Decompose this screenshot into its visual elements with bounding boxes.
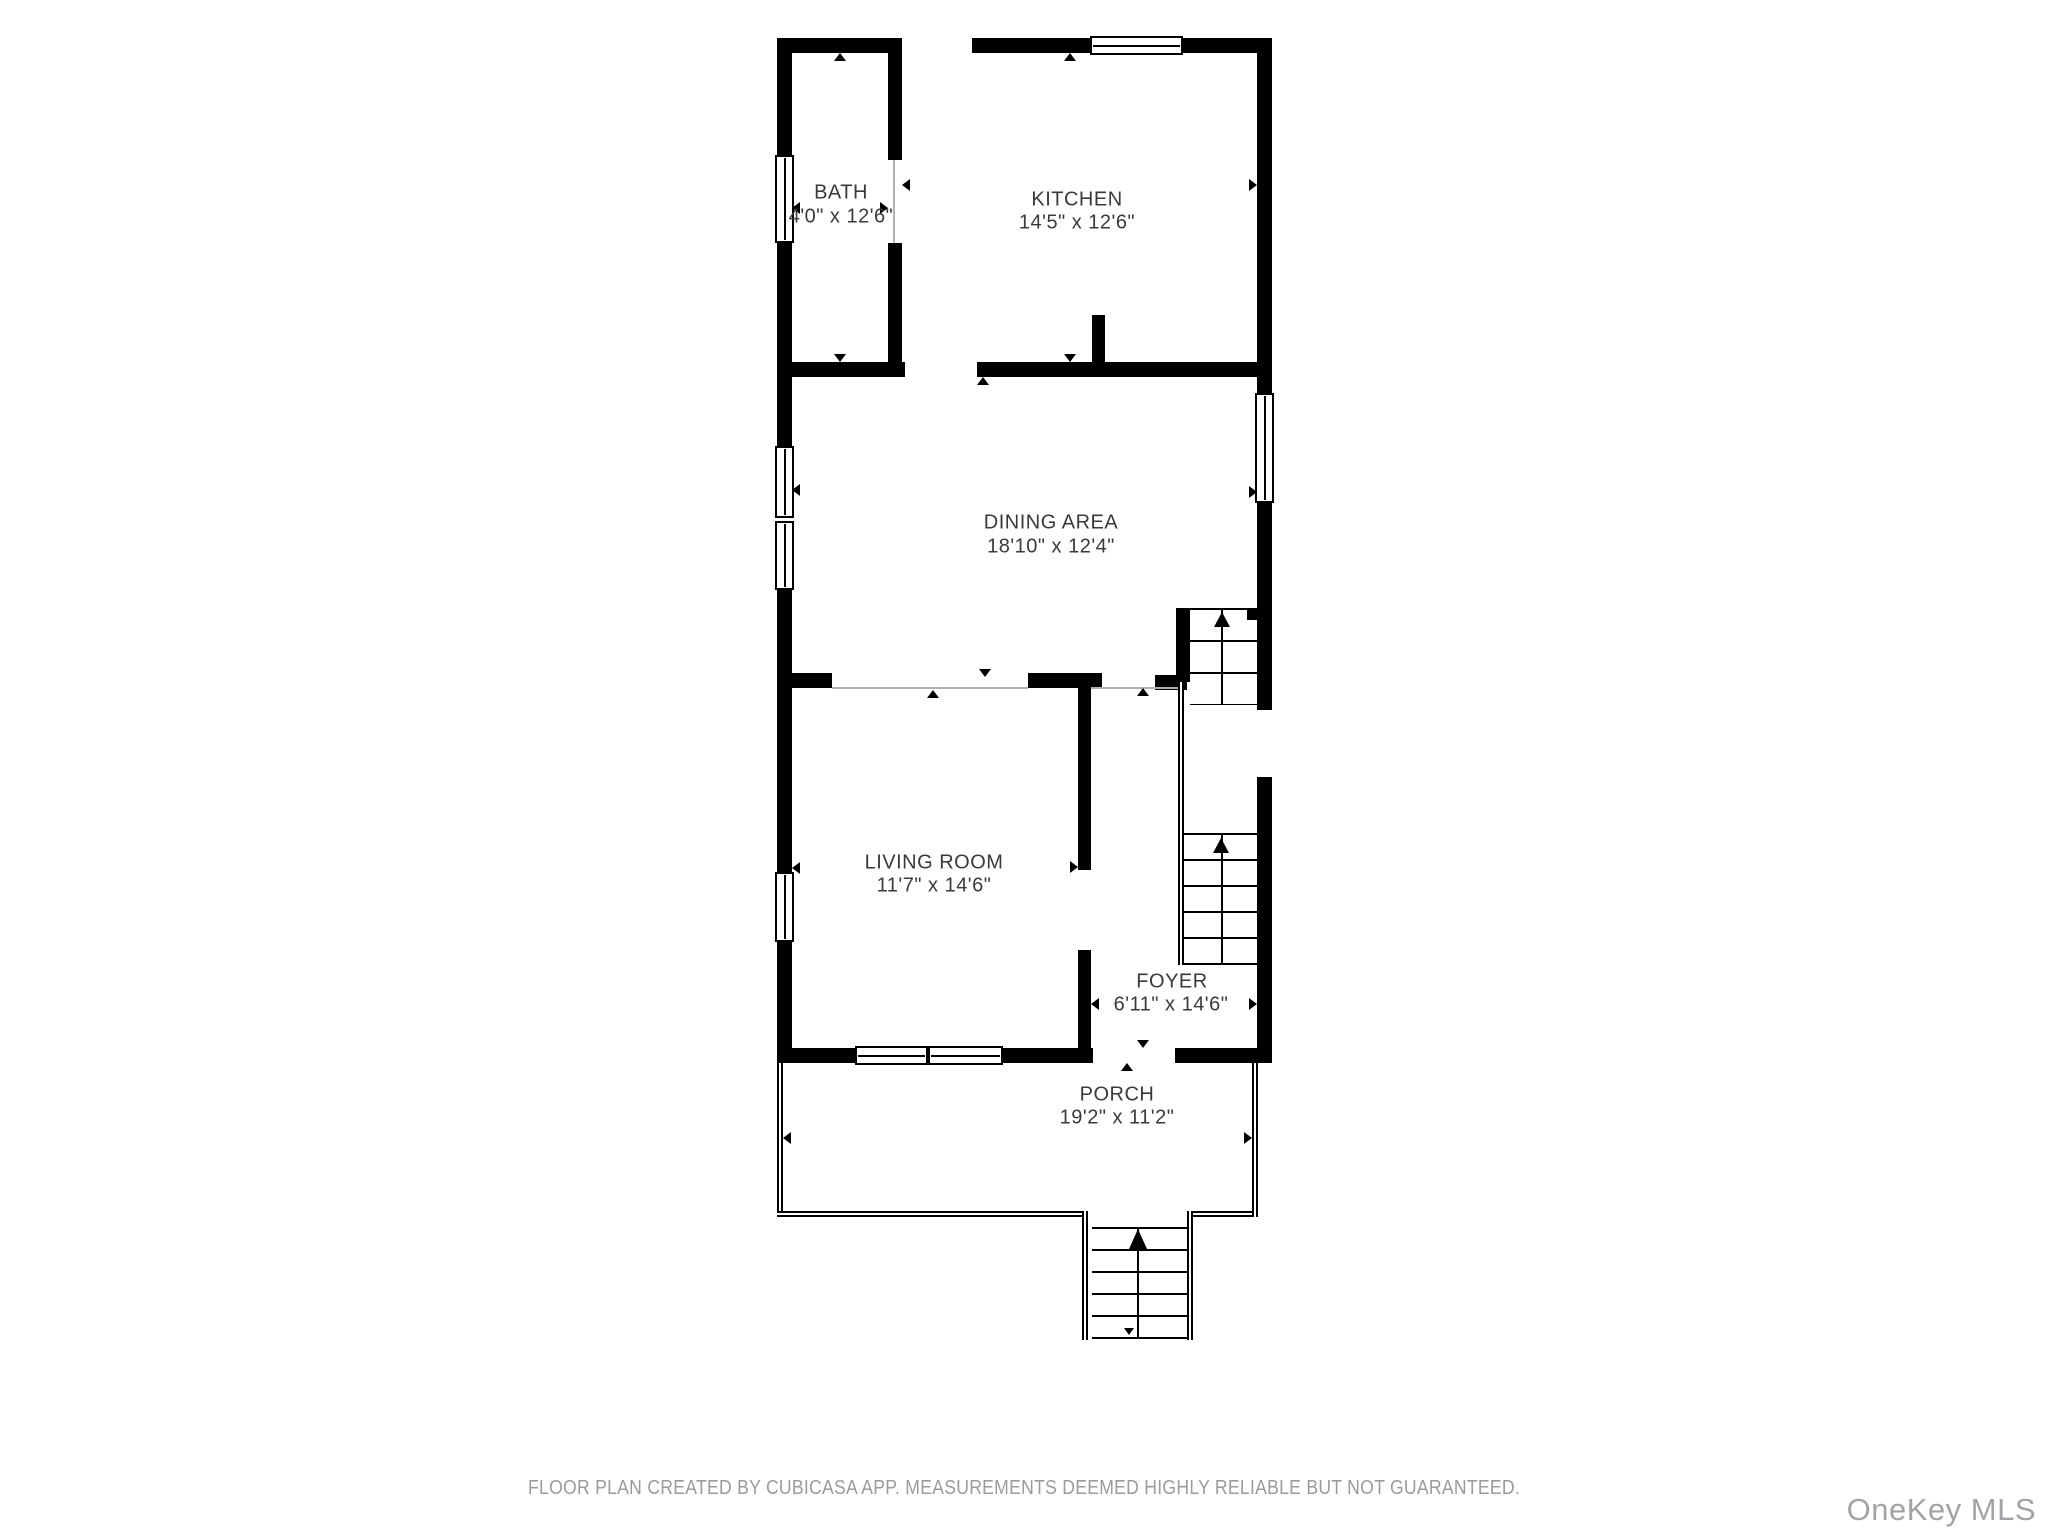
wall-left-c <box>777 590 792 872</box>
room-name-bath: BATH <box>814 182 868 205</box>
marker-bath-top-icon <box>834 53 846 61</box>
window-living-bottom-1 <box>855 1046 928 1065</box>
porch-wall-bottom-left <box>777 1211 1087 1217</box>
marker-porch-right-icon <box>1244 1132 1252 1144</box>
wall-bath-right-b <box>888 243 902 362</box>
wall-living-foyer-a <box>1078 673 1091 870</box>
marker-dining-threshold-up-icon <box>927 690 939 698</box>
marker-kitchen-bottom-icon <box>1064 354 1076 362</box>
marker-living-left-icon <box>792 862 800 874</box>
wall-living-foyer-b <box>1078 950 1091 1063</box>
room-dims-kitchen: 14'5" x 12'6" <box>1019 212 1135 235</box>
marker-kitchen-dining-passage-icon <box>977 377 989 385</box>
entry-stair-wall-left <box>1082 1211 1088 1340</box>
wall-kitchen-dining-b <box>977 362 1257 377</box>
window-dining-left-2 <box>775 521 794 590</box>
wall-bath-right-a <box>888 53 902 160</box>
marker-entry-above-icon <box>1137 1040 1149 1048</box>
room-dims-foyer: 6'11" x 14'6" <box>1114 994 1229 1017</box>
window-dining-right <box>1255 393 1274 503</box>
stairs-entry-arrow-icon <box>1129 1229 1147 1249</box>
threshold-bath-door <box>893 160 895 243</box>
stairs-entry-down-arrow-icon <box>1124 1328 1134 1335</box>
room-dims-porch: 19'2" x 11'2" <box>1060 1107 1175 1130</box>
room-name-foyer: FOYER <box>1136 971 1207 994</box>
wall-right-a <box>1257 38 1272 393</box>
window-bath-left <box>775 155 794 243</box>
window-kitchen-top <box>1090 36 1183 55</box>
wall-right-c <box>1257 777 1272 1048</box>
marker-foyer-dims-right-icon <box>1249 998 1257 1010</box>
window-living-bottom-2 <box>928 1046 1003 1065</box>
wall-bottom-a <box>777 1048 855 1063</box>
room-name-dining: DINING AREA <box>984 512 1118 535</box>
marker-foyer-dims-left-icon <box>1091 998 1099 1010</box>
wall-right-b <box>1257 503 1272 710</box>
marker-dining-left-icon <box>792 484 800 496</box>
room-dims-living: 11'7" x 14'6" <box>877 875 992 898</box>
entry-stair-wall-right <box>1187 1211 1193 1340</box>
stairs-upper-arrow-icon <box>1214 612 1230 627</box>
floor-plan-canvas: BATH 4'0" x 12'6" KITCHEN 14'5" x 12'6" … <box>0 0 2048 1536</box>
watermark-text: OneKey MLS <box>1847 1492 2036 1528</box>
room-name-porch: PORCH <box>1080 1084 1155 1107</box>
marker-dining-right-icon <box>1249 486 1257 498</box>
marker-kitchen-top-icon <box>1064 53 1076 61</box>
room-dims-dining: 18'10" x 12'4" <box>987 536 1115 559</box>
wall-stair-stub-v <box>1176 608 1190 682</box>
room-name-kitchen: KITCHEN <box>1031 189 1122 212</box>
porch-wall-right <box>1252 1063 1258 1217</box>
wall-top-left <box>777 38 902 53</box>
wall-bottom-c <box>1175 1048 1272 1063</box>
wall-top-mid <box>972 38 1090 53</box>
stairs-lower-arrow-icon <box>1213 838 1229 853</box>
room-name-living: LIVING ROOM <box>865 852 1004 875</box>
room-dims-bath: 4'0" x 12'6" <box>789 206 894 229</box>
wall-kitchen-dining-a <box>792 362 905 377</box>
porch-wall-bottom-right <box>1193 1211 1258 1217</box>
wall-left-a <box>777 38 792 155</box>
marker-bath-door-icon <box>902 179 910 191</box>
window-living-left <box>775 872 794 942</box>
wall-dining-living-a <box>792 673 832 688</box>
marker-porch-left-icon <box>783 1132 791 1144</box>
wall-kitchen-stub <box>1092 315 1105 362</box>
marker-kitchen-right-icon <box>1249 179 1257 191</box>
marker-dining-threshold-down-icon <box>979 669 991 677</box>
marker-living-door-icon <box>1070 861 1078 873</box>
marker-bath-bottom-icon <box>834 354 846 362</box>
marker-dining-foyer-icon <box>1137 688 1149 696</box>
wall-left-d <box>777 942 792 1063</box>
marker-entry-below-icon <box>1121 1063 1133 1071</box>
window-dining-left-1 <box>775 446 794 518</box>
floor-plan: BATH 4'0" x 12'6" KITCHEN 14'5" x 12'6" … <box>0 0 2048 1536</box>
threshold-dining-foyer <box>1091 687 1178 689</box>
disclaimer-text: FLOOR PLAN CREATED BY CUBICASA APP. MEAS… <box>528 1477 1520 1500</box>
threshold-dining-living <box>832 687 1028 689</box>
wall-left-b <box>777 243 792 446</box>
